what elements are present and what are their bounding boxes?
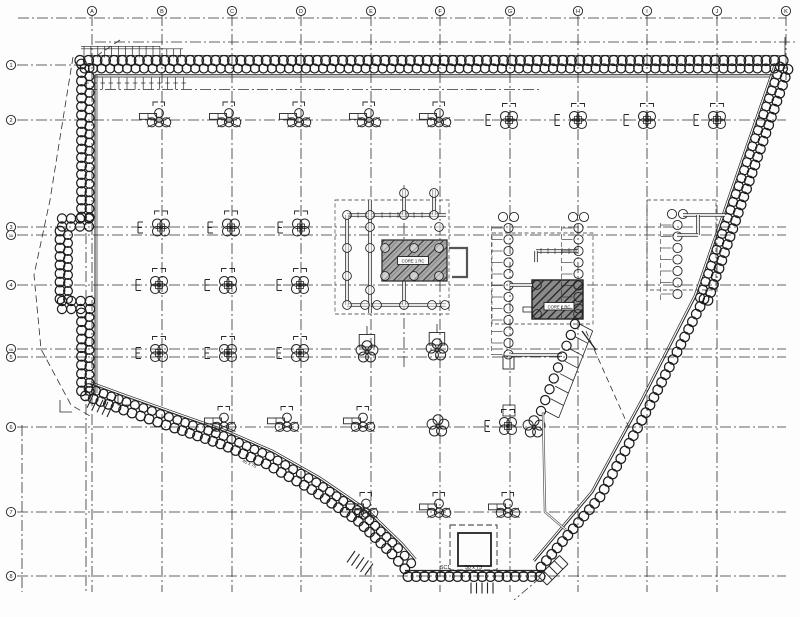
- svg-text:6: 6: [9, 425, 12, 431]
- svg-text:8: 8: [9, 574, 12, 580]
- svg-text:K: K: [784, 9, 788, 15]
- svg-text:B: B: [160, 9, 164, 15]
- svg-text:1: 1: [9, 63, 12, 69]
- svg-text:5: 5: [9, 355, 12, 361]
- svg-text:E: E: [369, 9, 373, 15]
- svg-text:H: H: [576, 9, 580, 15]
- svg-text:4A: 4A: [9, 348, 14, 352]
- svg-text:4: 4: [9, 283, 12, 289]
- svg-text:J: J: [716, 9, 719, 15]
- svg-text:SC1: SC1: [440, 565, 450, 571]
- svg-text:C: C: [230, 9, 234, 15]
- svg-text:2: 2: [9, 118, 12, 124]
- svg-text:A: A: [90, 9, 94, 15]
- svg-text:D: D: [299, 9, 303, 15]
- svg-text:7: 7: [9, 510, 12, 516]
- svg-text:50 x 75: 50 x 75: [465, 565, 482, 571]
- svg-text:3A: 3A: [9, 234, 14, 238]
- svg-text:G: G: [508, 9, 512, 15]
- svg-text:CORE 1 RC: CORE 1 RC: [402, 259, 425, 264]
